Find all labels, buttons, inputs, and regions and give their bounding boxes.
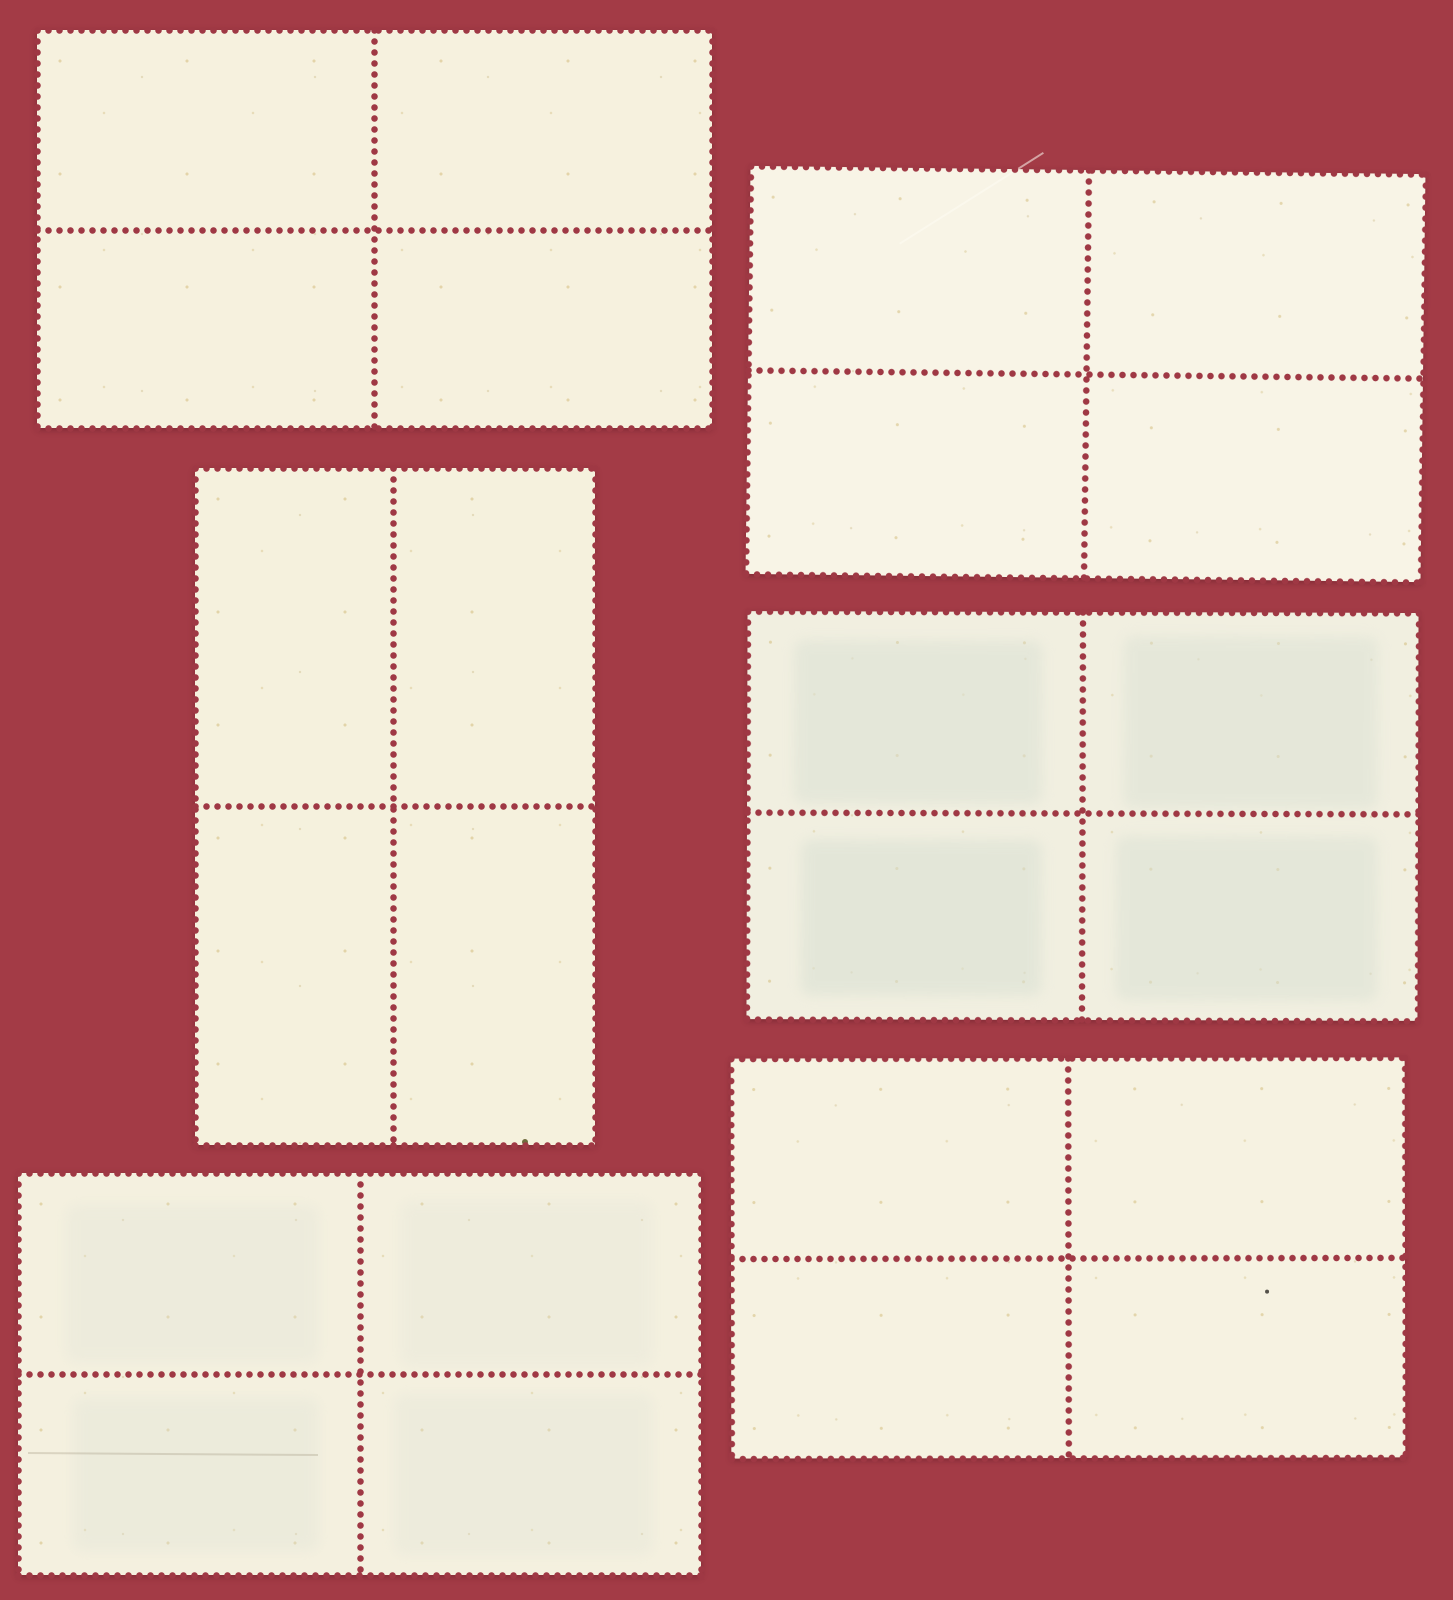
stamp-paper (18, 1173, 701, 1575)
stamp-block-bottom-left (18, 1173, 701, 1575)
stamp-block-top-left (37, 30, 712, 428)
stamp-paper (731, 1057, 1406, 1458)
stamp-paper (746, 611, 1418, 1021)
album-page-background (0, 0, 1453, 1600)
stamp-paper (37, 30, 712, 428)
stamp-paper (746, 166, 1426, 582)
stamp-paper (195, 468, 595, 1145)
stamp-block-top-right (746, 166, 1426, 582)
stamp-block-middle-right (746, 611, 1418, 1021)
stamp-block-middle-left (195, 468, 595, 1145)
stamp-block-bottom-right (731, 1057, 1406, 1458)
